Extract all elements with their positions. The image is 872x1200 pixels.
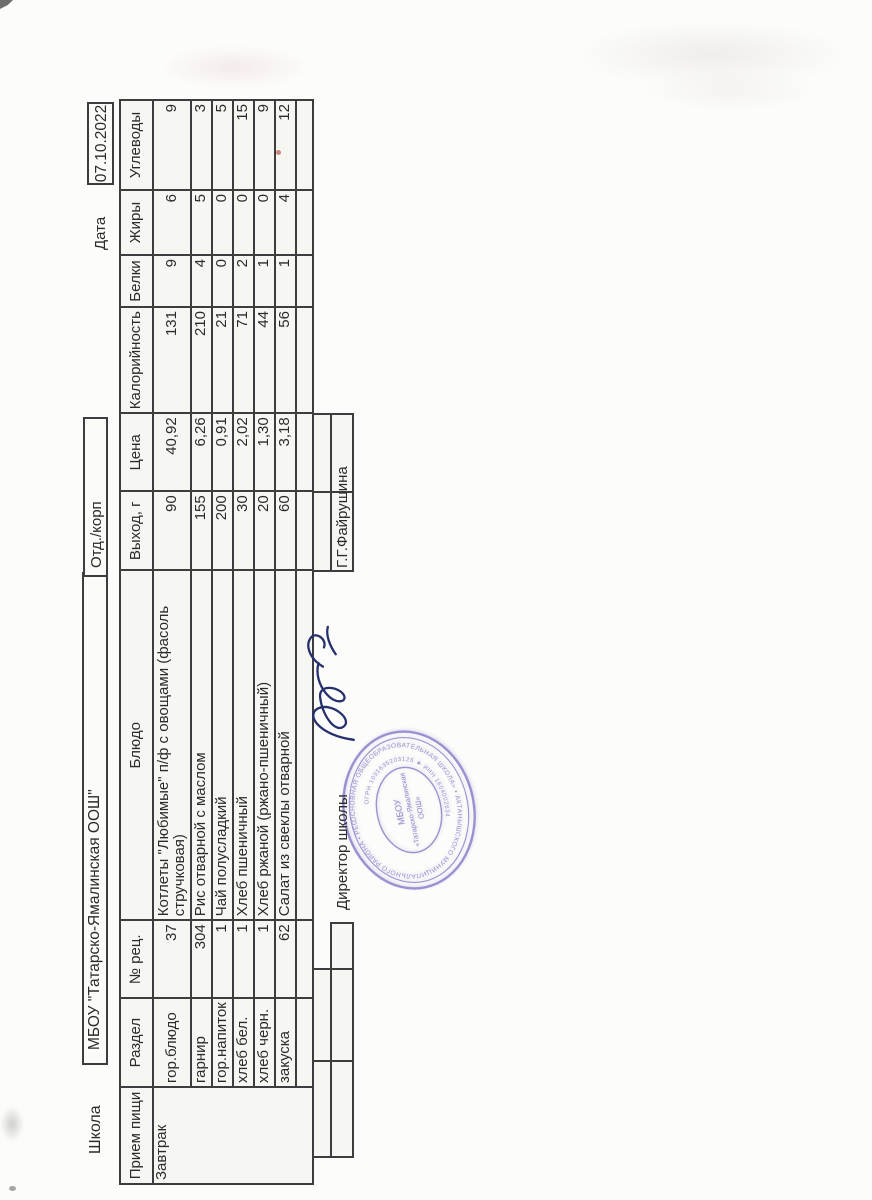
- table-row: Завтрак гор.блюдо 37 Котлеты "Любимые" п…: [153, 100, 191, 1184]
- cell-dish: Рис отварной с маслом: [191, 570, 212, 920]
- director-name: Г.Г.Файрушина: [334, 466, 351, 568]
- empty-cell: [296, 998, 313, 1087]
- footer-grid-cell: [312, 413, 332, 493]
- empty-cell: [296, 920, 313, 998]
- cell-protein: 1: [254, 255, 275, 307]
- col-header-dish: Блюдо: [120, 570, 153, 920]
- cell-calories: 44: [254, 307, 275, 413]
- cell-carbs: 5: [212, 100, 233, 190]
- cell-fat: 0: [254, 190, 275, 255]
- cell-fat: 0: [212, 190, 233, 255]
- cell-output: 30: [233, 491, 254, 570]
- footer-grid-cell: [330, 968, 354, 1062]
- cell-carbs: 9: [254, 100, 275, 190]
- cell-calories: 131: [153, 307, 191, 413]
- col-header-section: Раздел: [120, 998, 153, 1087]
- dept-corp-box: Отд./корп: [83, 417, 108, 577]
- meal-cell: Завтрак: [153, 1087, 313, 1184]
- footer-grid-cell: [312, 968, 332, 1062]
- cell-fat: 6: [153, 190, 191, 255]
- cell-price: 1,30: [254, 413, 275, 491]
- table-row: хлеб черн. 1 Хлеб ржаной (ржано-пшеничны…: [254, 100, 275, 1184]
- col-header-recipe: № рец.: [120, 920, 153, 998]
- col-header-carbs: Углеводы: [120, 100, 153, 190]
- director-label: Директор школы: [334, 794, 351, 910]
- cell-price: 2,02: [233, 413, 254, 491]
- cell-calories: 21: [212, 307, 233, 413]
- menu-table: Прием пищи Раздел № рец. Блюдо Выход, г …: [119, 99, 314, 1185]
- footer-grid-cell: [312, 491, 332, 572]
- cell-calories: 56: [275, 307, 296, 413]
- cell-fat: 5: [191, 190, 212, 255]
- col-header-output: Выход, г: [120, 491, 153, 570]
- cell-section: хлеб бел.: [233, 998, 254, 1087]
- header-row: Прием пищи Раздел № рец. Блюдо Выход, г …: [120, 100, 153, 1184]
- cell-recipe: 304: [191, 920, 212, 998]
- cell-fat: 0: [233, 190, 254, 255]
- cell-section: гор.напиток: [212, 998, 233, 1087]
- footer-grid-cell: [330, 1060, 354, 1158]
- col-header-price: Цена: [120, 413, 153, 491]
- cell-price: 0,91: [212, 413, 233, 491]
- cell-carbs: 15: [233, 100, 254, 190]
- date-value-box: 07.10.2022: [87, 102, 114, 185]
- school-name-box: МБОУ "Татарско-Ямалинская ООШ": [82, 572, 108, 1065]
- col-header-fat: Жиры: [120, 190, 153, 255]
- cell-section: хлеб черн.: [254, 998, 275, 1087]
- col-header-calories: Калорийность: [120, 307, 153, 413]
- empty-cell: [296, 307, 313, 413]
- cell-dish: Хлеб ржаной (ржано-пшеничный): [254, 570, 275, 920]
- table-row: гор.напиток 1 Чай полусладкий 200 0,91 2…: [212, 100, 233, 1184]
- cell-price: 6,26: [191, 413, 212, 491]
- cell-carbs: 3: [191, 100, 212, 190]
- scan-speck: [276, 150, 281, 155]
- cell-section: гор.блюдо: [153, 998, 191, 1087]
- cell-output: 155: [191, 491, 212, 570]
- cell-calories: 71: [233, 307, 254, 413]
- rotated-document: Школа МБОУ "Татарско-Ямалинская ООШ" Отд…: [0, 0, 872, 1200]
- cell-output: 200: [212, 491, 233, 570]
- cell-protein: 1: [275, 255, 296, 307]
- empty-cell: [296, 413, 313, 491]
- scanner-edge-streak: [0, 1106, 24, 1142]
- school-stamp: ОСНОВНАЯ ОБЩЕОБРАЗОВАТЕЛЬНАЯ ШКОЛА» • АК…: [338, 726, 480, 894]
- cell-dish: Чай полусладкий: [212, 570, 233, 920]
- cell-output: 20: [254, 491, 275, 570]
- scan-speck: [9, 1186, 16, 1191]
- cell-dish: Котлеты "Любимые" п/ф с овощами (фасоль …: [153, 570, 191, 920]
- cell-protein: 4: [191, 255, 212, 307]
- footer-grid-cell: [330, 922, 354, 970]
- cell-recipe: 62: [275, 920, 296, 998]
- cell-protein: 0: [212, 255, 233, 307]
- empty-cell: [296, 255, 313, 307]
- cell-section: гарнир: [191, 998, 212, 1087]
- col-header-protein: Белки: [120, 255, 153, 307]
- cell-recipe: 37: [153, 920, 191, 998]
- cell-dish: Салат из свеклы отварной: [275, 570, 296, 920]
- cell-recipe: 1: [254, 920, 275, 998]
- cell-calories: 210: [191, 307, 212, 413]
- cell-price: 40,92: [153, 413, 191, 491]
- empty-cell: [296, 190, 313, 255]
- cell-protein: 2: [233, 255, 254, 307]
- col-header-meal: Прием пищи: [120, 1087, 153, 1184]
- cell-carbs: 12: [275, 100, 296, 190]
- empty-cell: [296, 100, 313, 190]
- director-signature: [294, 622, 366, 750]
- cell-dish: Хлеб пшеничный: [233, 570, 254, 920]
- cell-section: закуска: [275, 998, 296, 1087]
- cell-price: 3,18: [275, 413, 296, 491]
- school-label: Школа: [87, 1105, 105, 1154]
- table-row: гарнир 304 Рис отварной с маслом 155 6,2…: [191, 100, 212, 1184]
- date-label: Дата: [92, 217, 109, 250]
- cell-fat: 4: [275, 190, 296, 255]
- cell-recipe: 1: [233, 920, 254, 998]
- cell-output: 90: [153, 491, 191, 570]
- table-row: закуска 62 Салат из свеклы отварной 60 3…: [275, 100, 296, 1184]
- empty-cell: [296, 491, 313, 570]
- footer-grid-cell: [312, 1060, 332, 1158]
- cell-protein: 9: [153, 255, 191, 307]
- scanned-menu-page: Школа МБОУ "Татарско-Ямалинская ООШ" Отд…: [0, 0, 872, 1200]
- table-row: хлеб бел. 1 Хлеб пшеничный 30 2,02 71 2 …: [233, 100, 254, 1184]
- cell-carbs: 9: [153, 100, 191, 190]
- cell-output: 60: [275, 491, 296, 570]
- cell-recipe: 1: [212, 920, 233, 998]
